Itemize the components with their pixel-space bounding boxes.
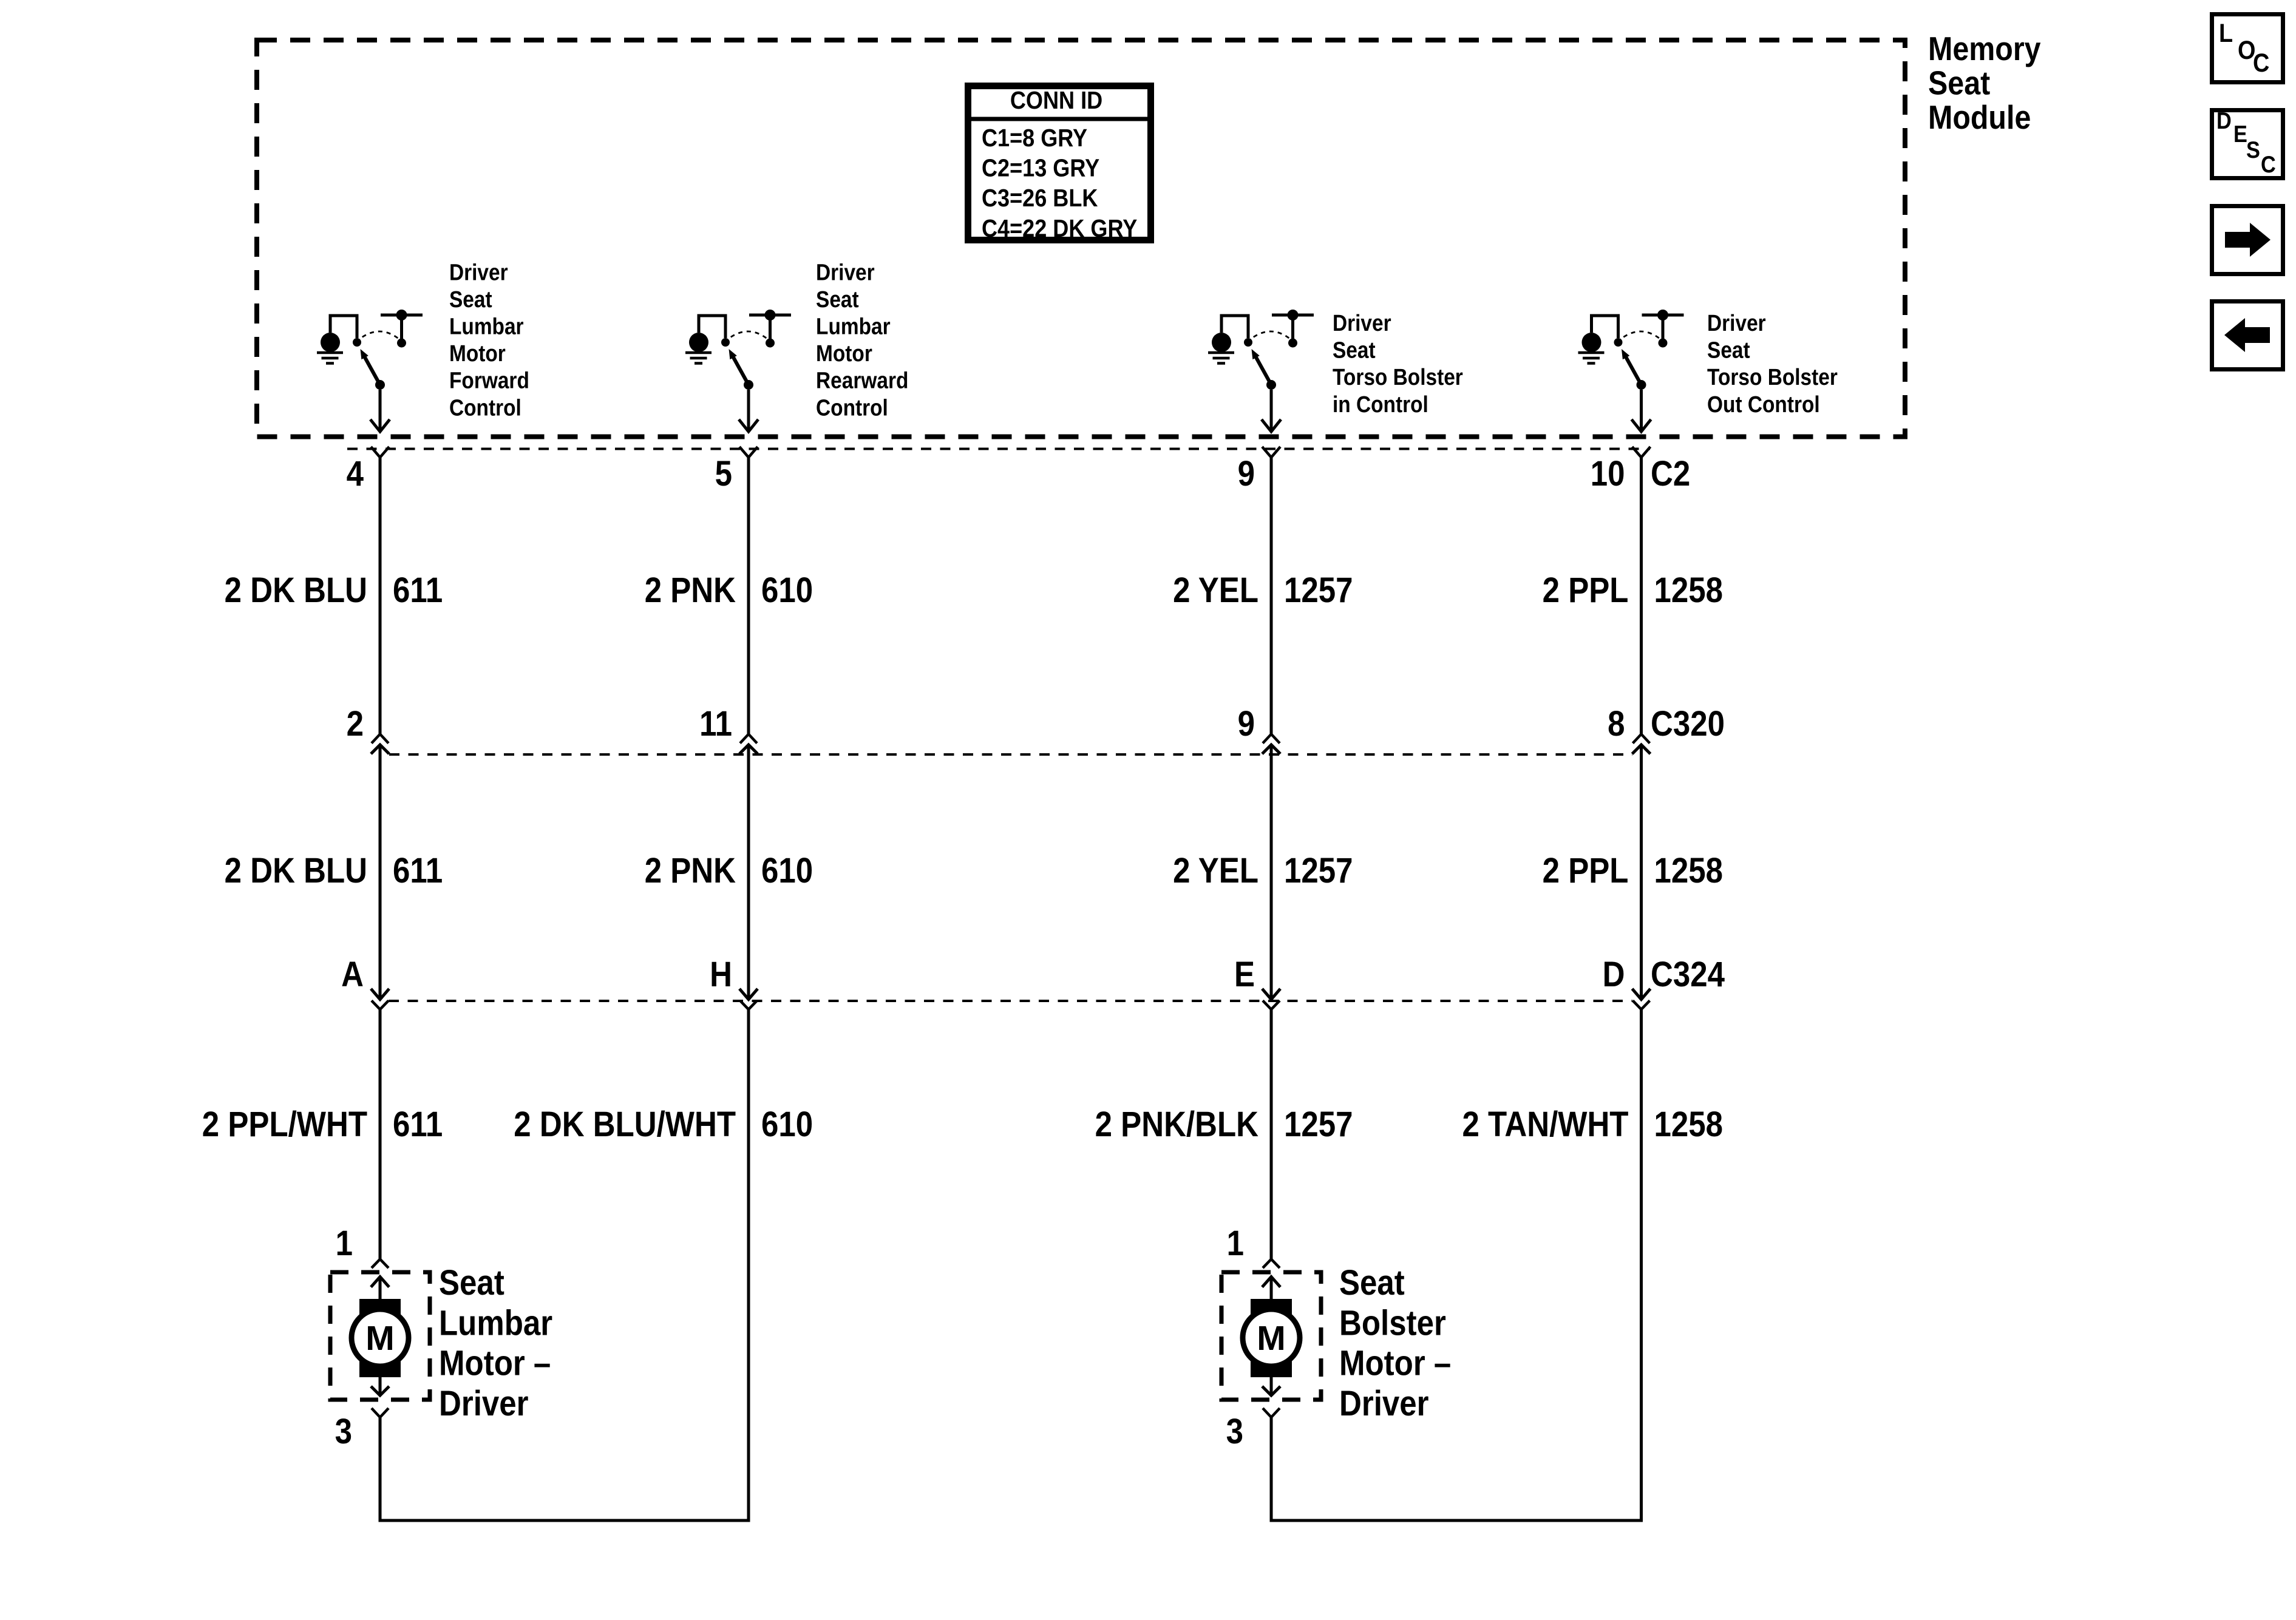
svg-text:611: 611	[393, 1105, 443, 1144]
svg-text:Seat: Seat	[439, 1263, 504, 1303]
svg-text:610: 610	[761, 851, 813, 890]
svg-text:Torso Bolster: Torso Bolster	[1707, 364, 1838, 390]
svg-text:Driver: Driver	[816, 259, 875, 285]
svg-text:2 PNK/BLK: 2 PNK/BLK	[1095, 1105, 1258, 1144]
svg-text:A: A	[341, 955, 364, 994]
svg-text:611: 611	[393, 851, 443, 890]
svg-text:2 PPL: 2 PPL	[1543, 571, 1629, 610]
svg-text:Driver: Driver	[1333, 310, 1391, 336]
svg-text:Seat: Seat	[816, 286, 859, 312]
svg-text:C: C	[2261, 151, 2276, 178]
svg-text:2: 2	[347, 704, 364, 744]
svg-text:1: 1	[336, 1224, 353, 1263]
svg-text:2 YEL: 2 YEL	[1173, 571, 1258, 610]
svg-text:Seat: Seat	[1707, 337, 1750, 363]
svg-text:Control: Control	[816, 395, 888, 420]
svg-text:D: D	[2216, 107, 2232, 134]
svg-text:E: E	[2233, 121, 2247, 147]
svg-text:Seat: Seat	[1333, 337, 1376, 363]
svg-text:Lumbar: Lumbar	[439, 1303, 552, 1343]
svg-text:H: H	[710, 955, 732, 994]
svg-text:2 DK BLU/WHT: 2 DK BLU/WHT	[514, 1105, 736, 1144]
svg-text:2 PNK: 2 PNK	[645, 571, 736, 610]
svg-text:Control: Control	[449, 395, 521, 420]
svg-text:Torso Bolster: Torso Bolster	[1333, 364, 1463, 390]
svg-text:8: 8	[1608, 704, 1625, 744]
svg-text:1257: 1257	[1284, 571, 1353, 610]
svg-text:9: 9	[1238, 704, 1255, 744]
svg-text:Driver: Driver	[449, 259, 508, 285]
svg-text:Driver: Driver	[439, 1384, 529, 1423]
svg-text:D: D	[1603, 955, 1625, 994]
svg-text:2 TAN/WHT: 2 TAN/WHT	[1462, 1105, 1628, 1144]
svg-text:C4=22 DK GRY: C4=22 DK GRY	[982, 215, 1138, 243]
svg-text:C320: C320	[1651, 704, 1725, 744]
svg-text:2 YEL: 2 YEL	[1173, 851, 1258, 890]
svg-text:Driver: Driver	[1707, 310, 1766, 336]
svg-text:Motor: Motor	[816, 341, 872, 366]
svg-text:1: 1	[1227, 1224, 1244, 1263]
svg-text:4: 4	[347, 454, 364, 493]
svg-text:5: 5	[715, 454, 732, 493]
svg-text:Motor –: Motor –	[439, 1344, 551, 1383]
svg-text:9: 9	[1238, 454, 1255, 493]
svg-text:1257: 1257	[1284, 851, 1353, 890]
svg-text:611: 611	[393, 571, 443, 610]
svg-text:C2=13 GRY: C2=13 GRY	[982, 155, 1099, 183]
svg-text:2 PPL/WHT: 2 PPL/WHT	[202, 1105, 367, 1144]
svg-text:3: 3	[335, 1412, 352, 1451]
svg-text:Forward: Forward	[449, 368, 529, 393]
svg-text:2 DK BLU: 2 DK BLU	[225, 571, 367, 610]
svg-text:Lumbar: Lumbar	[816, 314, 891, 339]
svg-text:Driver: Driver	[1339, 1384, 1429, 1423]
svg-text:Motor: Motor	[449, 341, 506, 366]
svg-text:CONN ID: CONN ID	[1010, 87, 1102, 115]
svg-text:Memory: Memory	[1928, 30, 2041, 67]
svg-text:Seat: Seat	[449, 286, 492, 312]
svg-text:E: E	[1234, 955, 1255, 994]
svg-text:1258: 1258	[1654, 851, 1723, 890]
svg-text:2 DK BLU: 2 DK BLU	[225, 851, 367, 890]
svg-text:C2: C2	[1651, 454, 1690, 493]
svg-text:Seat: Seat	[1928, 64, 1990, 102]
svg-text:10: 10	[1591, 454, 1625, 493]
svg-text:Rearward: Rearward	[816, 368, 908, 393]
svg-text:3: 3	[1226, 1412, 1243, 1451]
svg-text:Out Control: Out Control	[1707, 391, 1820, 417]
svg-text:1258: 1258	[1654, 1105, 1723, 1144]
svg-text:Module: Module	[1928, 98, 2031, 136]
svg-text:2 PNK: 2 PNK	[645, 851, 736, 890]
svg-text:11: 11	[699, 704, 732, 744]
svg-text:in Control: in Control	[1333, 391, 1428, 417]
svg-text:610: 610	[761, 571, 813, 610]
svg-text:Seat: Seat	[1339, 1263, 1405, 1303]
svg-text:1257: 1257	[1284, 1105, 1353, 1144]
svg-text:C324: C324	[1651, 955, 1725, 994]
svg-text:Lumbar: Lumbar	[449, 314, 524, 339]
svg-text:2 PPL: 2 PPL	[1543, 851, 1629, 890]
svg-text:1258: 1258	[1654, 571, 1723, 610]
svg-text:C1=8 GRY: C1=8 GRY	[982, 124, 1087, 152]
svg-text:610: 610	[761, 1105, 813, 1144]
svg-text:S: S	[2246, 137, 2260, 163]
svg-text:L: L	[2219, 18, 2233, 48]
svg-text:C: C	[2253, 48, 2269, 78]
svg-text:C3=26 BLK: C3=26 BLK	[982, 185, 1098, 212]
svg-text:Motor –: Motor –	[1339, 1344, 1451, 1383]
svg-text:Bolster: Bolster	[1339, 1303, 1446, 1343]
